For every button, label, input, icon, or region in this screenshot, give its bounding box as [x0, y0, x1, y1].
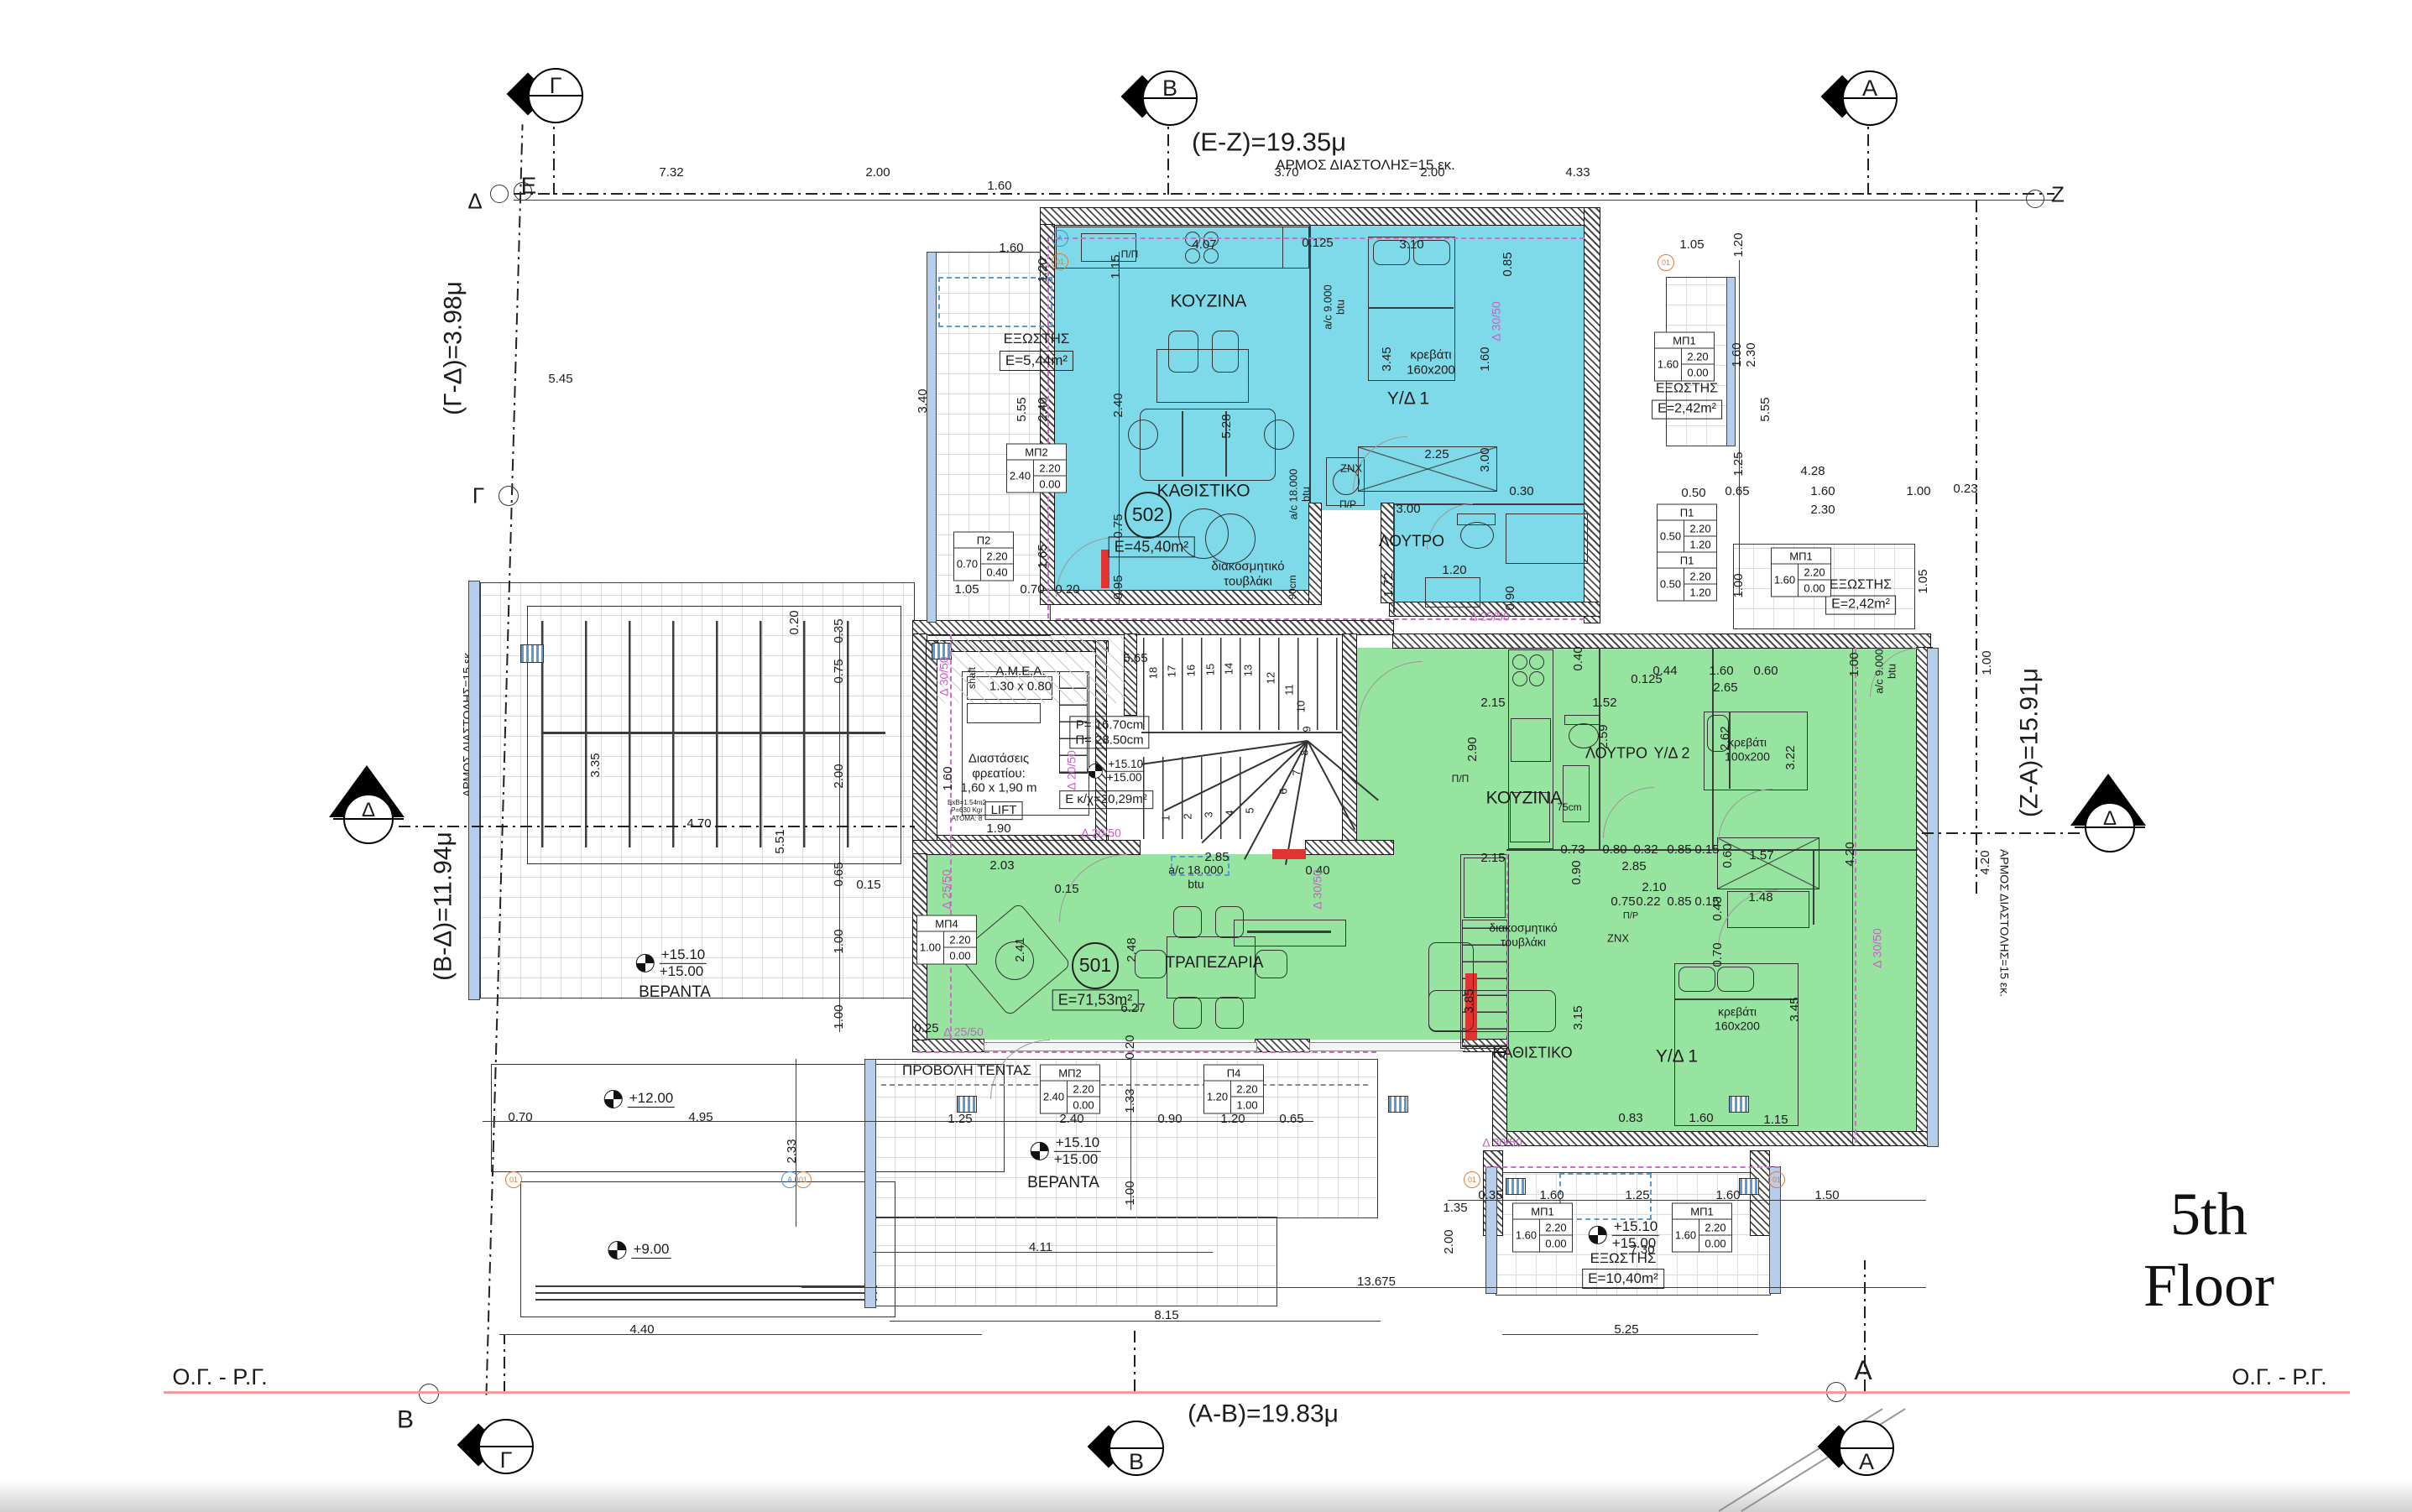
dimension-label: 2.15	[1480, 696, 1505, 711]
level-marker: +12.00	[604, 1090, 675, 1108]
dimension-label: 5.51	[773, 829, 788, 853]
opening-sill: 0.00	[1682, 365, 1714, 381]
plan-linework	[1309, 1042, 1465, 1051]
opening-schedule: Π41.202.201.00	[1203, 1065, 1264, 1114]
dimension-label: 2.00	[1420, 165, 1444, 180]
dimension-label: 2.15	[1480, 851, 1505, 866]
dimension-label: 1.60	[1478, 347, 1493, 371]
dimension-label: 1.25	[1731, 451, 1746, 476]
beam-label: Δ 25/50	[943, 1025, 984, 1040]
opening-sill: 1.00	[1231, 1098, 1263, 1113]
opening-height: 2.20	[1068, 1082, 1099, 1098]
plan-linework	[504, 1334, 505, 1393]
dimension-label: 2.65	[1713, 680, 1737, 696]
opening-sill: 1.20	[1684, 585, 1716, 601]
wall-segment	[1125, 634, 1136, 715]
dimension-label: 1.72	[1381, 572, 1397, 597]
plan-label: ΤΡΑΠΕΖΑΡΙΑ	[1166, 954, 1264, 972]
balcony-grid	[874, 1217, 1277, 1306]
stair-number: 12	[1264, 672, 1276, 684]
opening-height: 2.20	[1799, 565, 1830, 581]
opening-id: ΜΠ4	[917, 916, 976, 932]
stair-number: 10	[1294, 701, 1307, 712]
dimension-label: 0.20	[1123, 1035, 1138, 1059]
opening-width: 1.20	[1204, 1082, 1231, 1113]
dimension-label: 2.40	[1059, 1112, 1083, 1127]
overall-dimension-left-upper: (Γ-Δ)=3.98μ	[438, 281, 467, 415]
stair-number: 5	[1243, 807, 1256, 813]
radiator-icon	[957, 1096, 977, 1113]
opening-width: 0.50	[1658, 569, 1684, 601]
ref-circle: 01	[505, 1171, 522, 1188]
plan-label: ΚΟΥΖΙΝΑ	[1486, 789, 1563, 810]
opening-sill: 0.00	[944, 948, 976, 964]
dimension-label: 0.80	[1602, 842, 1626, 858]
plan-linework	[1264, 420, 1294, 450]
opening-width: 1.60	[1655, 349, 1682, 381]
opening-sill: 0.00	[1034, 477, 1066, 493]
dimension-label: 5.28	[1219, 414, 1235, 438]
section-marker-letter: Γ	[530, 73, 582, 99]
plan-label: ΠΡΟΒΟΛΗ ΤΕΝΤΑΣ	[902, 1062, 1031, 1079]
level-marker: +9.00	[608, 1241, 671, 1259]
overall-dimension-left: (B-Δ)=11.94μ	[428, 832, 457, 981]
dimension-label: 0.75	[1611, 894, 1635, 910]
dimension-label: 4.40	[629, 1322, 654, 1337]
plan-label: Α.Μ.Ε.Α. 1.30 x 0.80	[989, 664, 1052, 693]
wall-segment	[1493, 1053, 1506, 1145]
dimension-label: 2.41	[1013, 937, 1028, 962]
benchmark-icon	[1589, 1226, 1607, 1244]
plan-label: κρεβάτι 160x200	[1715, 1004, 1760, 1032]
section-marker-circle: Γ	[528, 68, 583, 123]
plan-linework	[2026, 190, 2044, 208]
dimension-label: 2.10	[1642, 880, 1666, 895]
dimension-label: 0.85	[1667, 842, 1691, 858]
dimension-label: 0.22	[1636, 894, 1660, 910]
boxed-label: P= 16.70cm Π= 28.50cm	[1069, 716, 1149, 748]
dimension-label: 0.40	[1571, 646, 1586, 670]
stair-number: 13	[1241, 665, 1254, 676]
dimension-label: 1.90	[986, 821, 1010, 837]
section-marker-circle: Γ	[478, 1419, 534, 1474]
opening-id: ΜΠ1	[1772, 549, 1830, 565]
dimension-label: 2.30	[1810, 503, 1835, 518]
wall-segment	[1041, 208, 1598, 225]
level-marker: +15.10+15.00	[1589, 1219, 1659, 1251]
section-marker-circle: A	[1842, 70, 1898, 126]
opening-width: 2.40	[1007, 461, 1034, 493]
dimension-label: 1.60	[987, 179, 1011, 194]
dimension-label: 0.30	[1509, 484, 1533, 499]
opening-schedule: Π20.702.200.40	[953, 532, 1014, 581]
level-value: +15.10+15.00	[1054, 1135, 1101, 1167]
plan-linework	[1485, 1166, 1779, 1168]
dimension-label: 0.44	[1652, 664, 1677, 679]
plan-label: a/c 9.000 btu	[1322, 284, 1348, 330]
axis-letter: Δ	[467, 189, 482, 215]
boxed-label: E=5,44m²	[1000, 351, 1073, 371]
opening-schedule: Π10.502.201.20	[1657, 552, 1717, 602]
beam-label: Δ 30/50	[1871, 928, 1885, 968]
stair-number: 1	[1159, 815, 1172, 821]
opening-height: 2.20	[1540, 1220, 1572, 1236]
dimension-label: 1.00	[832, 1004, 847, 1029]
plan-linework	[1448, 1200, 1926, 1201]
opening-sill: 0.00	[1068, 1098, 1099, 1113]
beam-label: Δ 30/50	[1490, 301, 1504, 342]
dimension-label: 0.60	[1720, 843, 1736, 868]
wall-segment	[913, 841, 1140, 854]
plan-linework	[514, 200, 2054, 201]
dimension-label: 2.30	[1744, 342, 1759, 367]
plan-linework	[541, 732, 885, 734]
plan-linework	[535, 1299, 877, 1301]
ref-circle: A	[781, 1171, 798, 1188]
dimension-label: 1.00	[1731, 573, 1746, 597]
ref-circle: 01	[1768, 1171, 1785, 1188]
section-marker: Γ	[458, 1399, 551, 1491]
dimension-label: 0.50	[1681, 486, 1705, 501]
stair-treads	[1143, 757, 1254, 839]
opening-width: 0.50	[1658, 521, 1684, 553]
plan-linework	[1976, 197, 1977, 894]
plan-linework	[1717, 967, 1754, 992]
plan-linework	[1215, 997, 1244, 1029]
wall-segment	[913, 621, 1393, 634]
apartment-area: E=45,40m²	[1109, 536, 1195, 557]
plan-linework	[1128, 420, 1158, 450]
stair-number: 17	[1165, 665, 1177, 677]
dimension-label: 2.33	[785, 1139, 800, 1163]
opening-width: 1.60	[1673, 1220, 1699, 1252]
beam-label: Δ 25/50	[1470, 610, 1510, 624]
dimension-label: 1.15	[1763, 1113, 1788, 1128]
opening-id: ΜΠ1	[1673, 1204, 1731, 1220]
boxed-label: E=2,42m²	[1652, 400, 1722, 420]
section-marker-letter: Γ	[480, 1447, 532, 1473]
dimension-label: 2.00	[865, 165, 890, 180]
dimension-label: 1.60	[1810, 484, 1835, 499]
plan-linework	[890, 1321, 1381, 1322]
dimension-label: 2.03	[989, 858, 1014, 873]
plan-label: ΕΞΩΣΤΗΣ	[1656, 382, 1718, 398]
opening-height: 2.20	[1699, 1220, 1731, 1236]
dimension-label: 13.675	[1357, 1275, 1396, 1290]
apartment-area: E=71,53m²	[1052, 989, 1139, 1010]
plan-linework	[520, 1181, 895, 1317]
dimension-label: 1.60	[941, 766, 956, 790]
radiator-icon	[1739, 1178, 1759, 1195]
dimension-label: 0.15	[1054, 882, 1078, 897]
dimension-label: 3.00	[1396, 502, 1420, 517]
dimension-label: 0.70	[508, 1110, 532, 1125]
expansion-joint-label-right: ΑΡΜΟΣ ΔΙΑΣΤΟΛΗΣ=15 εκ.	[1997, 849, 2012, 997]
plan-linework	[881, 1084, 1368, 1086]
opening-sill: 0.00	[1799, 581, 1830, 597]
dimension-label: 1.20	[1036, 258, 1051, 282]
apartment-badge: 502	[1125, 492, 1172, 539]
dimension-label: 0.95	[1111, 575, 1126, 599]
dimension-label: 1.00	[1847, 652, 1862, 676]
section-marker: Δ	[325, 765, 409, 859]
plan-linework	[1529, 671, 1544, 686]
plan-linework	[1173, 906, 1202, 938]
plan-linework	[917, 1051, 1376, 1053]
beam-label: Δ 25/50	[940, 869, 954, 910]
dimension-label: 1.25	[948, 1112, 972, 1127]
section-marker: Δ	[2066, 774, 2150, 868]
opening-sill: 1.20	[1684, 537, 1716, 553]
plan-label: Π/Π	[1452, 773, 1470, 785]
plan-linework	[1739, 260, 1740, 596]
overall-dimension-top: (E-Z)=19.35μ	[1192, 128, 1346, 159]
dimension-label: 4.95	[688, 1110, 713, 1125]
ref-circle: 01	[1464, 1171, 1480, 1188]
dimension-label: 2.25	[1424, 447, 1449, 462]
opening-width: 1.00	[917, 932, 944, 964]
dimension-label: 0.90	[1503, 586, 1518, 610]
level-value: +9.00	[631, 1242, 671, 1259]
plan-linework	[1215, 906, 1244, 938]
wall-segment	[1506, 1132, 1930, 1145]
plan-linework	[1173, 997, 1202, 1029]
dimension-label: 3.00	[1478, 447, 1493, 472]
plan-linework	[1512, 671, 1527, 686]
plan-label: ΛΟΥΤΡΟ	[1379, 533, 1444, 551]
window-strip	[1485, 1166, 1497, 1294]
section-marker: A	[1819, 1400, 1911, 1493]
plan-linework	[499, 486, 519, 506]
stair-number: 18	[1146, 667, 1159, 679]
plan-label: a/c 18.000 btu	[1287, 469, 1313, 520]
plan-label: κρεβάτι 160x200	[1407, 347, 1455, 377]
beam-label: Δ 20/50	[1065, 750, 1079, 790]
stair-number: 8	[1297, 749, 1310, 755]
plan-label: ΕΞΩΣΤΗΣ	[1004, 331, 1070, 347]
opening-id: ΜΠ2	[1007, 445, 1066, 461]
dimension-label: 2.85	[1621, 859, 1646, 874]
plan-linework	[839, 629, 840, 1032]
plan-linework	[1309, 225, 1311, 503]
plan-linework	[1506, 514, 1588, 564]
opening-id: Π1	[1658, 553, 1716, 569]
dimension-label: 1.60	[1689, 1111, 1713, 1126]
dimension-label: 1.50	[1814, 1188, 1839, 1203]
dimension-label: 1.05	[1679, 237, 1704, 253]
boxed-label: Ε κ/χ=20,29m²	[1059, 790, 1153, 809]
dimension-label: 1.00	[832, 929, 847, 953]
plan-linework	[1529, 654, 1544, 670]
opening-height: 2.20	[1034, 461, 1066, 477]
dimension-label: 5.25	[1614, 1322, 1638, 1337]
opening-schedule: Π10.502.201.20	[1657, 504, 1717, 554]
beam-label: Δ 30/50	[1482, 1136, 1522, 1150]
plan-linework	[541, 621, 885, 847]
dimension-label: 0.85	[1501, 252, 1516, 276]
dimension-label: 0.32	[1633, 842, 1658, 858]
plan-linework	[1428, 990, 1556, 1032]
level-value: +15.10+15.00	[1612, 1219, 1659, 1251]
dimension-label: 0.70	[1020, 582, 1044, 597]
plan-label: ZNX	[1340, 461, 1362, 474]
section-marker-letter: B	[1110, 1449, 1162, 1475]
opening-width: 1.60	[1772, 565, 1799, 597]
wall-segment	[913, 634, 927, 854]
level-value: +12.00	[628, 1091, 675, 1108]
wall-segment	[1256, 1040, 1309, 1051]
plan-linework	[1852, 648, 1853, 1144]
wall-segment	[913, 1040, 984, 1051]
boxed-label: LIFT	[985, 801, 1023, 820]
level-marker: +15.10+15.00	[636, 947, 707, 979]
axis-letter: B	[397, 1405, 414, 1434]
dimension-label: 1.65	[1036, 544, 1051, 568]
dimension-label: 4.33	[1565, 165, 1590, 180]
dimension-label: 4.70	[687, 816, 711, 832]
plan-linework	[1205, 514, 1256, 564]
dimension-label: 1.20	[1731, 232, 1746, 257]
section-marker-circle: A	[1839, 1421, 1894, 1476]
section-marker-circle: B	[1109, 1421, 1164, 1476]
axis-letter: E	[521, 171, 537, 199]
dimension-label: 1.60	[1709, 664, 1733, 679]
plan-linework	[967, 703, 1041, 723]
stair-number: 7	[1290, 769, 1303, 775]
plan-linework	[1563, 765, 1590, 822]
window-strip	[927, 252, 937, 623]
dimension-label: 0.65	[1279, 1112, 1303, 1127]
plan-linework	[1506, 854, 1508, 1053]
dimension-label: 1.57	[1749, 848, 1773, 863]
dimension-label: 0.83	[1618, 1111, 1642, 1126]
dimension-label: 4.07	[1192, 237, 1216, 253]
dimension-label: 1.00	[1123, 1181, 1138, 1205]
dimension-label: 0.125	[1302, 236, 1334, 251]
plan-linework	[419, 1384, 439, 1404]
fixture-outline	[938, 277, 1052, 327]
opening-schedule: ΜΠ11.602.200.00	[1771, 548, 1831, 597]
dimension-label: 2.90	[1465, 737, 1480, 761]
section-marker-letter: B	[1144, 76, 1196, 102]
section-marker: B	[1089, 1400, 1181, 1493]
level-marker: +15.10+15.00	[1031, 1135, 1101, 1167]
radiator-icon	[520, 644, 544, 663]
dimension-label: 0.20	[1055, 582, 1079, 597]
page-title: 5th Floor	[2107, 1179, 2310, 1322]
opening-id: Π4	[1204, 1066, 1263, 1082]
dimension-label: 5.65	[1123, 651, 1147, 666]
dimension-label: 1.33	[1123, 1088, 1138, 1113]
stair-number: 2	[1181, 813, 1193, 819]
opening-id: Π1	[1658, 505, 1716, 521]
section-marker-letter: Δ	[345, 799, 392, 822]
ref-circle: 01	[1052, 253, 1068, 270]
section-marker-circle: B	[1142, 70, 1198, 126]
plan-linework	[1678, 967, 1715, 992]
stair-number: 3	[1202, 811, 1214, 817]
dimension-label: 0.23	[1953, 482, 1977, 497]
opening-schedule: ΜΠ11.602.200.00	[1654, 332, 1715, 382]
floor-plan: (E-Z)=19.35μ (Γ-Δ)=3.98μ (B-Δ)=11.94μ (Z…	[0, 0, 2412, 1512]
dimension-label: 1.00	[1906, 484, 1930, 499]
dimension-label: 1.20	[1220, 1112, 1245, 1127]
opening-id: ΜΠ1	[1513, 1204, 1572, 1220]
boundary-red-line	[164, 1391, 2350, 1394]
plan-label: ΕΞΩΣΤΗΣ	[1590, 1250, 1657, 1267]
stair-number: 4	[1223, 810, 1235, 816]
opening-schedule: ΜΠ11.602.200.00	[1512, 1203, 1573, 1253]
plan-linework	[1182, 411, 1183, 477]
plan-linework	[1140, 409, 1276, 481]
dimension-label: 4.20	[1978, 850, 1993, 874]
dimension-label: 3.10	[1399, 237, 1423, 253]
section-marker-circle: Δ	[2085, 802, 2135, 852]
section-marker-circle: Δ	[343, 794, 394, 844]
dimension-label: 4.28	[1800, 464, 1825, 479]
dimension-label: 0.35	[1478, 1188, 1502, 1203]
opening-schedule: ΜΠ22.402.200.00	[1040, 1065, 1100, 1114]
radiator-icon	[1388, 1096, 1408, 1113]
opening-width: 0.70	[954, 549, 981, 581]
plan-label: ΒΕΡΑΝΤΑ	[1027, 1174, 1099, 1192]
wall-segment	[1306, 841, 1393, 854]
opening-width: 1.60	[1513, 1220, 1540, 1252]
section-marker: B	[1122, 50, 1214, 143]
beam-label: Δ 30/50	[937, 656, 952, 696]
plan-label: Π/Π	[1121, 248, 1139, 260]
section-marker: A	[1822, 50, 1914, 143]
dimension-label: 0.43	[1710, 896, 1725, 920]
dimension-label: 1.60	[1539, 1188, 1564, 1203]
dimension-label: 1.52	[1592, 696, 1616, 711]
opening-height: 2.20	[1231, 1082, 1263, 1098]
plan-label: διακοσμητικό τουβλάκι	[1211, 559, 1284, 588]
opening-height: 2.20	[1682, 349, 1714, 365]
plan-label: ΚΟΥΖΙΝΑ	[1171, 292, 1247, 313]
dimension-label: 3.15	[1571, 1005, 1586, 1030]
benchmark-icon	[1031, 1142, 1049, 1160]
dimension-label: 0.65	[832, 862, 847, 886]
plan-label: Υ/Δ 2	[1653, 744, 1689, 762]
plan-label: Υ/Δ 1	[1656, 1047, 1698, 1068]
dimension-label: 7.32	[659, 165, 683, 180]
section-marker-letter: A	[1840, 1449, 1893, 1475]
window-strip	[864, 1059, 876, 1308]
section-marker-letter: Δ	[2086, 807, 2133, 831]
opening-height: 2.20	[944, 932, 976, 948]
plan-label: ΒΕΡΑΝΤΑ	[639, 983, 711, 1002]
dimension-label: 0.85	[1667, 894, 1691, 910]
radiator-icon	[1506, 1178, 1526, 1195]
plan-label: ΕΞΩΣΤΗΣ	[1830, 578, 1892, 594]
stair-number: 16	[1184, 665, 1197, 676]
plan-linework	[1564, 715, 1600, 725]
opening-schedule: ΜΠ22.402.200.00	[1006, 444, 1067, 493]
ref-circle: A	[1052, 230, 1068, 247]
plan-linework	[1156, 349, 1249, 403]
dimension-label: 2.40	[1111, 393, 1126, 417]
plan-label: κρεβάτι 100x200	[1725, 735, 1770, 763]
dimension-label: 1.25	[1625, 1188, 1649, 1203]
dimension-label: 1.60	[999, 241, 1023, 256]
dimension-label: 5.55	[1015, 397, 1030, 421]
plan-linework	[483, 1121, 1313, 1122]
stair-treads	[1143, 638, 1341, 730]
dimension-label: 1.60	[1730, 342, 1745, 367]
dimension-label: 0.75	[832, 659, 847, 683]
opening-height: 2.20	[981, 549, 1013, 565]
